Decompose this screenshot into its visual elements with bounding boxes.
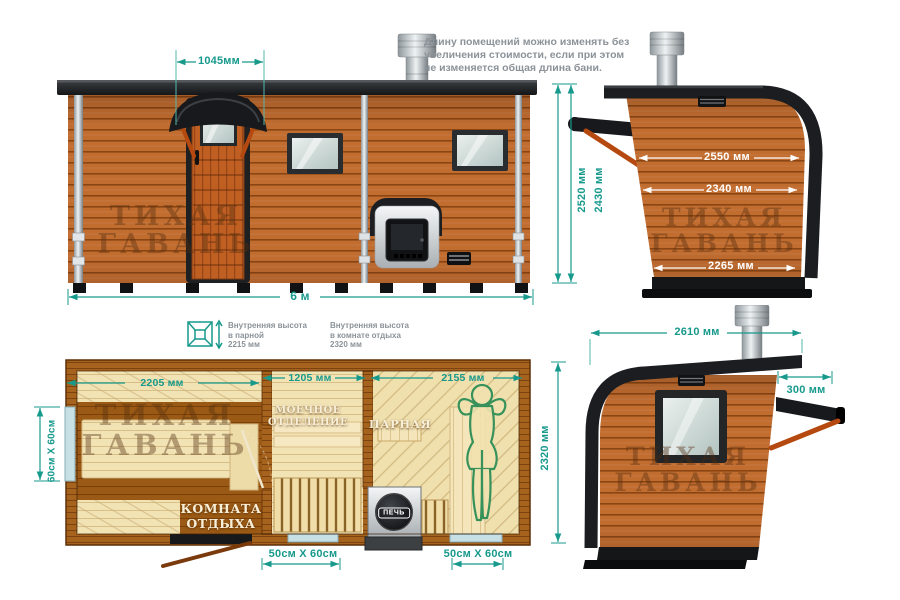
duckboard	[274, 478, 361, 532]
base-runner	[583, 560, 747, 569]
room-height-icon	[186, 319, 226, 351]
drainpipe	[73, 95, 85, 283]
dim-wash-room: 1205 мм	[288, 372, 331, 384]
dim-side-window: 60см Х 60см	[47, 420, 58, 483]
watermark: ТИХАЯ ГАВАНЬ	[614, 444, 761, 496]
base-skid	[597, 547, 759, 560]
watermark-line2: ГАВАНЬ	[97, 231, 254, 259]
watermark: ТИХАЯ ГАВАНЬ	[81, 400, 248, 460]
dim-door-width: 1045мм	[198, 55, 240, 67]
watermark-line1: ТИХАЯ	[650, 205, 797, 231]
label-stove: ПЕЧЬ	[378, 508, 410, 519]
dim-height-outer: 2520 мм	[576, 167, 588, 212]
eave-awning	[771, 397, 845, 448]
roof-edge	[57, 80, 537, 83]
dim-total-length: 6 м	[290, 289, 310, 303]
dim-height-inner: 2430 мм	[593, 167, 605, 212]
label-wash-room: МОЕЧНОЕ ОТДЕЛЕНИЕ	[268, 405, 348, 429]
entrance-door-plan	[163, 534, 252, 566]
dim-bottom-window-2: 50см Х 60см	[444, 548, 513, 560]
base-runner	[642, 289, 812, 298]
bottom-window	[450, 534, 502, 542]
window	[452, 130, 508, 171]
dim-width-middle: 2340 мм	[706, 183, 752, 195]
base-skid	[652, 277, 805, 289]
label-rest-room: КОМНАТА ОТДЫХА	[180, 501, 261, 531]
height-note-steam: Внутренняя высота в парной 2215 мм	[228, 321, 328, 350]
watermark-line2: ГАВАНЬ	[650, 231, 797, 257]
bottom-window	[288, 534, 338, 542]
vent-grille	[447, 252, 471, 265]
dim-left-view-width: 2610 мм	[674, 326, 719, 338]
roof-vent	[698, 96, 726, 107]
dim-width-top: 2550 мм	[704, 151, 750, 163]
door-handle	[195, 150, 199, 165]
chimney	[735, 305, 769, 359]
stove-plan	[365, 487, 422, 550]
watermark-line1: ТИХАЯ	[81, 400, 248, 430]
height-note-rest: Внутренняя высота в комнате отдыха 2320 …	[330, 321, 440, 350]
dim-width-bottom: 2265 мм	[708, 260, 754, 272]
dim-steam-room: 2155 мм	[441, 372, 484, 384]
window	[287, 133, 343, 174]
roof-vent	[678, 375, 705, 386]
watermark-line1: ТИХАЯ	[97, 203, 254, 231]
watermark-line1: ТИХАЯ	[614, 444, 761, 470]
watermark: ТИХАЯ ГАВАНЬ	[650, 205, 797, 257]
dim-plan-depth: 2320 мм	[539, 425, 551, 470]
wash-room	[272, 371, 363, 534]
floor-plan-view	[30, 350, 570, 598]
dim-rest-room: 2205 мм	[140, 377, 183, 389]
side-window	[65, 407, 75, 481]
note-change-length: Длину помещений можно изменять без увели…	[424, 36, 674, 75]
dim-height-lines	[552, 84, 577, 283]
watermark-line2: ГАВАНЬ	[614, 470, 761, 496]
dim-bottom-window-1: 50см Х 60см	[269, 548, 338, 560]
sauna-blueprint: Длину помещений можно изменять без увели…	[0, 0, 900, 600]
watermark: ТИХАЯ ГАВАНЬ	[97, 203, 254, 259]
label-steam-room: ПАРНАЯ	[369, 417, 431, 431]
duckboard	[422, 500, 448, 534]
dim-eave-overhang: 300 мм	[787, 384, 826, 396]
stove-front	[370, 198, 442, 268]
watermark-line2: ГАВАНЬ	[81, 430, 248, 460]
dim-eave-lines	[778, 371, 832, 384]
